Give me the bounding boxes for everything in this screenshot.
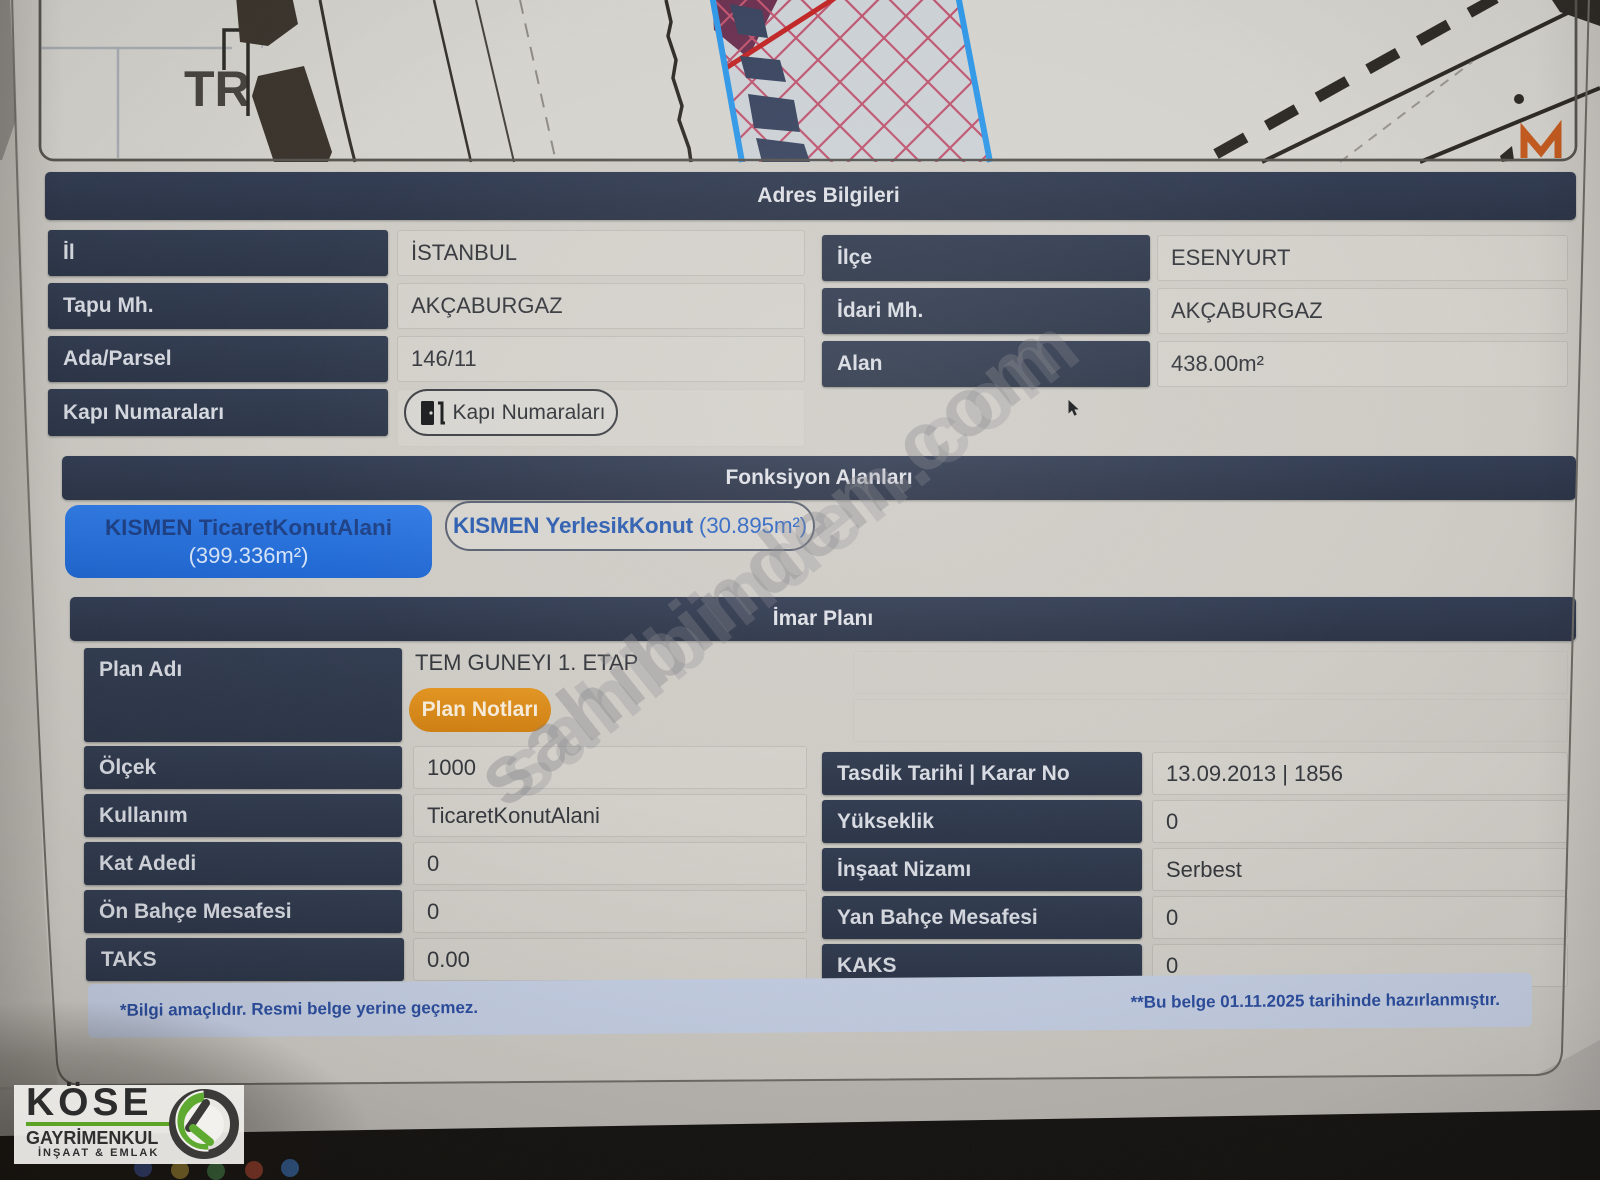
svg-text:TR: TR: [184, 61, 251, 117]
